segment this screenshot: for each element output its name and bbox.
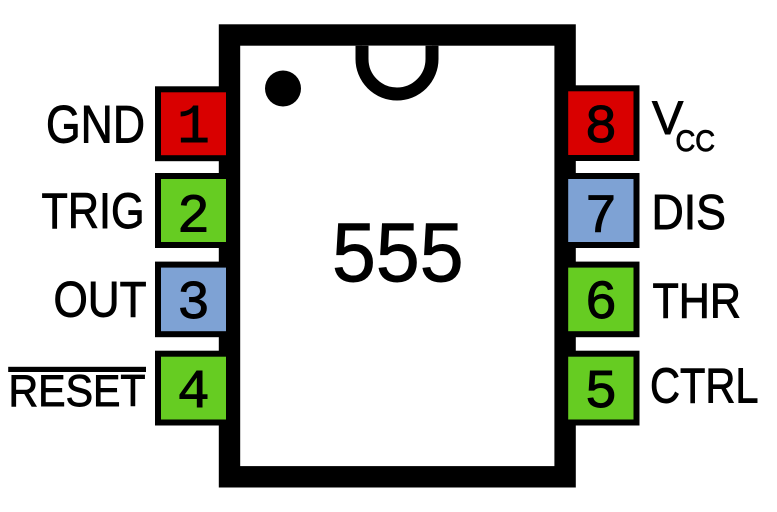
svg-text:555: 555: [332, 205, 464, 299]
svg-text:GND: GND: [46, 96, 145, 155]
svg-text:6: 6: [585, 274, 618, 335]
svg-text:OUT: OUT: [54, 272, 147, 328]
svg-text:DIS: DIS: [652, 185, 727, 240]
svg-text:CC: CC: [676, 125, 716, 158]
svg-text:5: 5: [585, 363, 618, 424]
svg-text:THR: THR: [653, 273, 742, 328]
svg-text:4: 4: [177, 363, 210, 424]
svg-text:TRIG: TRIG: [42, 182, 145, 239]
svg-text:CTRL: CTRL: [650, 359, 759, 414]
svg-text:2: 2: [177, 187, 210, 248]
svg-text:1: 1: [177, 98, 210, 159]
svg-text:RESET: RESET: [9, 367, 146, 416]
svg-text:8: 8: [585, 98, 618, 159]
svg-text:7: 7: [585, 187, 618, 248]
svg-text:3: 3: [177, 274, 210, 335]
